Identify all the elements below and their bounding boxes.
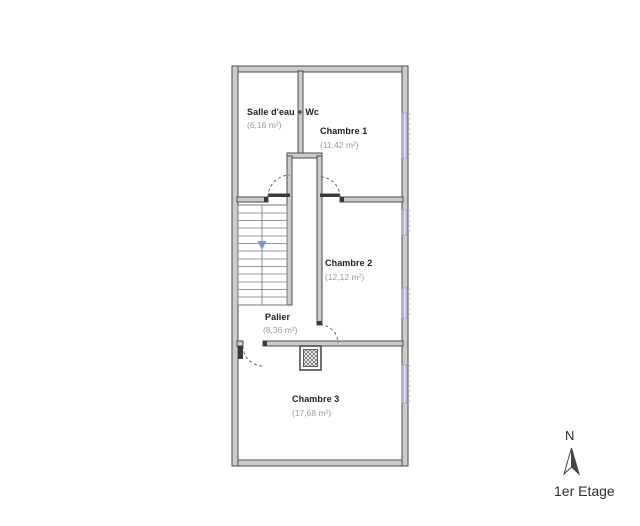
chimney-box [300, 346, 321, 370]
room-area-chambre-2: (12,12 m²) [325, 273, 364, 282]
window-chambre-2-upper [402, 210, 410, 235]
floor-plan: Salle d'eau + Wc (6,16 m²) Chambre 1 (11… [0, 0, 640, 526]
compass-north-label: N [565, 429, 574, 443]
door-arc-chambre-2 [320, 325, 338, 343]
door-leaf-chambre-2 [317, 321, 322, 325]
room-label-salle-eau-wc: Salle d'eau + Wc [247, 108, 319, 118]
door-leaf-chambre-3 [238, 346, 243, 359]
room-area-salle-eau-wc: (6,16 m²) [247, 121, 281, 130]
room-area-palier: (8,36 m²) [263, 326, 297, 335]
window-chambre-1 [402, 113, 410, 158]
north-arrow-icon [564, 448, 579, 474]
door-leaf-salle-eau [268, 194, 290, 198]
floor-plan-drawing [0, 0, 640, 526]
room-label-chambre-3: Chambre 3 [292, 395, 339, 405]
window-chambre-3 [402, 365, 410, 403]
room-label-chambre-2: Chambre 2 [325, 259, 372, 269]
floor-title: 1er Etage [554, 484, 615, 499]
room-area-chambre-1: (11,42 m²) [320, 141, 359, 150]
room-label-palier: Palier [265, 313, 290, 323]
room-area-chambre-3: (17,68 m²) [292, 409, 331, 418]
window-chambre-2-lower [402, 288, 410, 318]
door-arc-chambre-3 [243, 346, 263, 366]
room-label-chambre-1: Chambre 1 [320, 127, 367, 137]
door-leaf-chambre-1 [320, 194, 340, 198]
staircase [238, 205, 287, 305]
